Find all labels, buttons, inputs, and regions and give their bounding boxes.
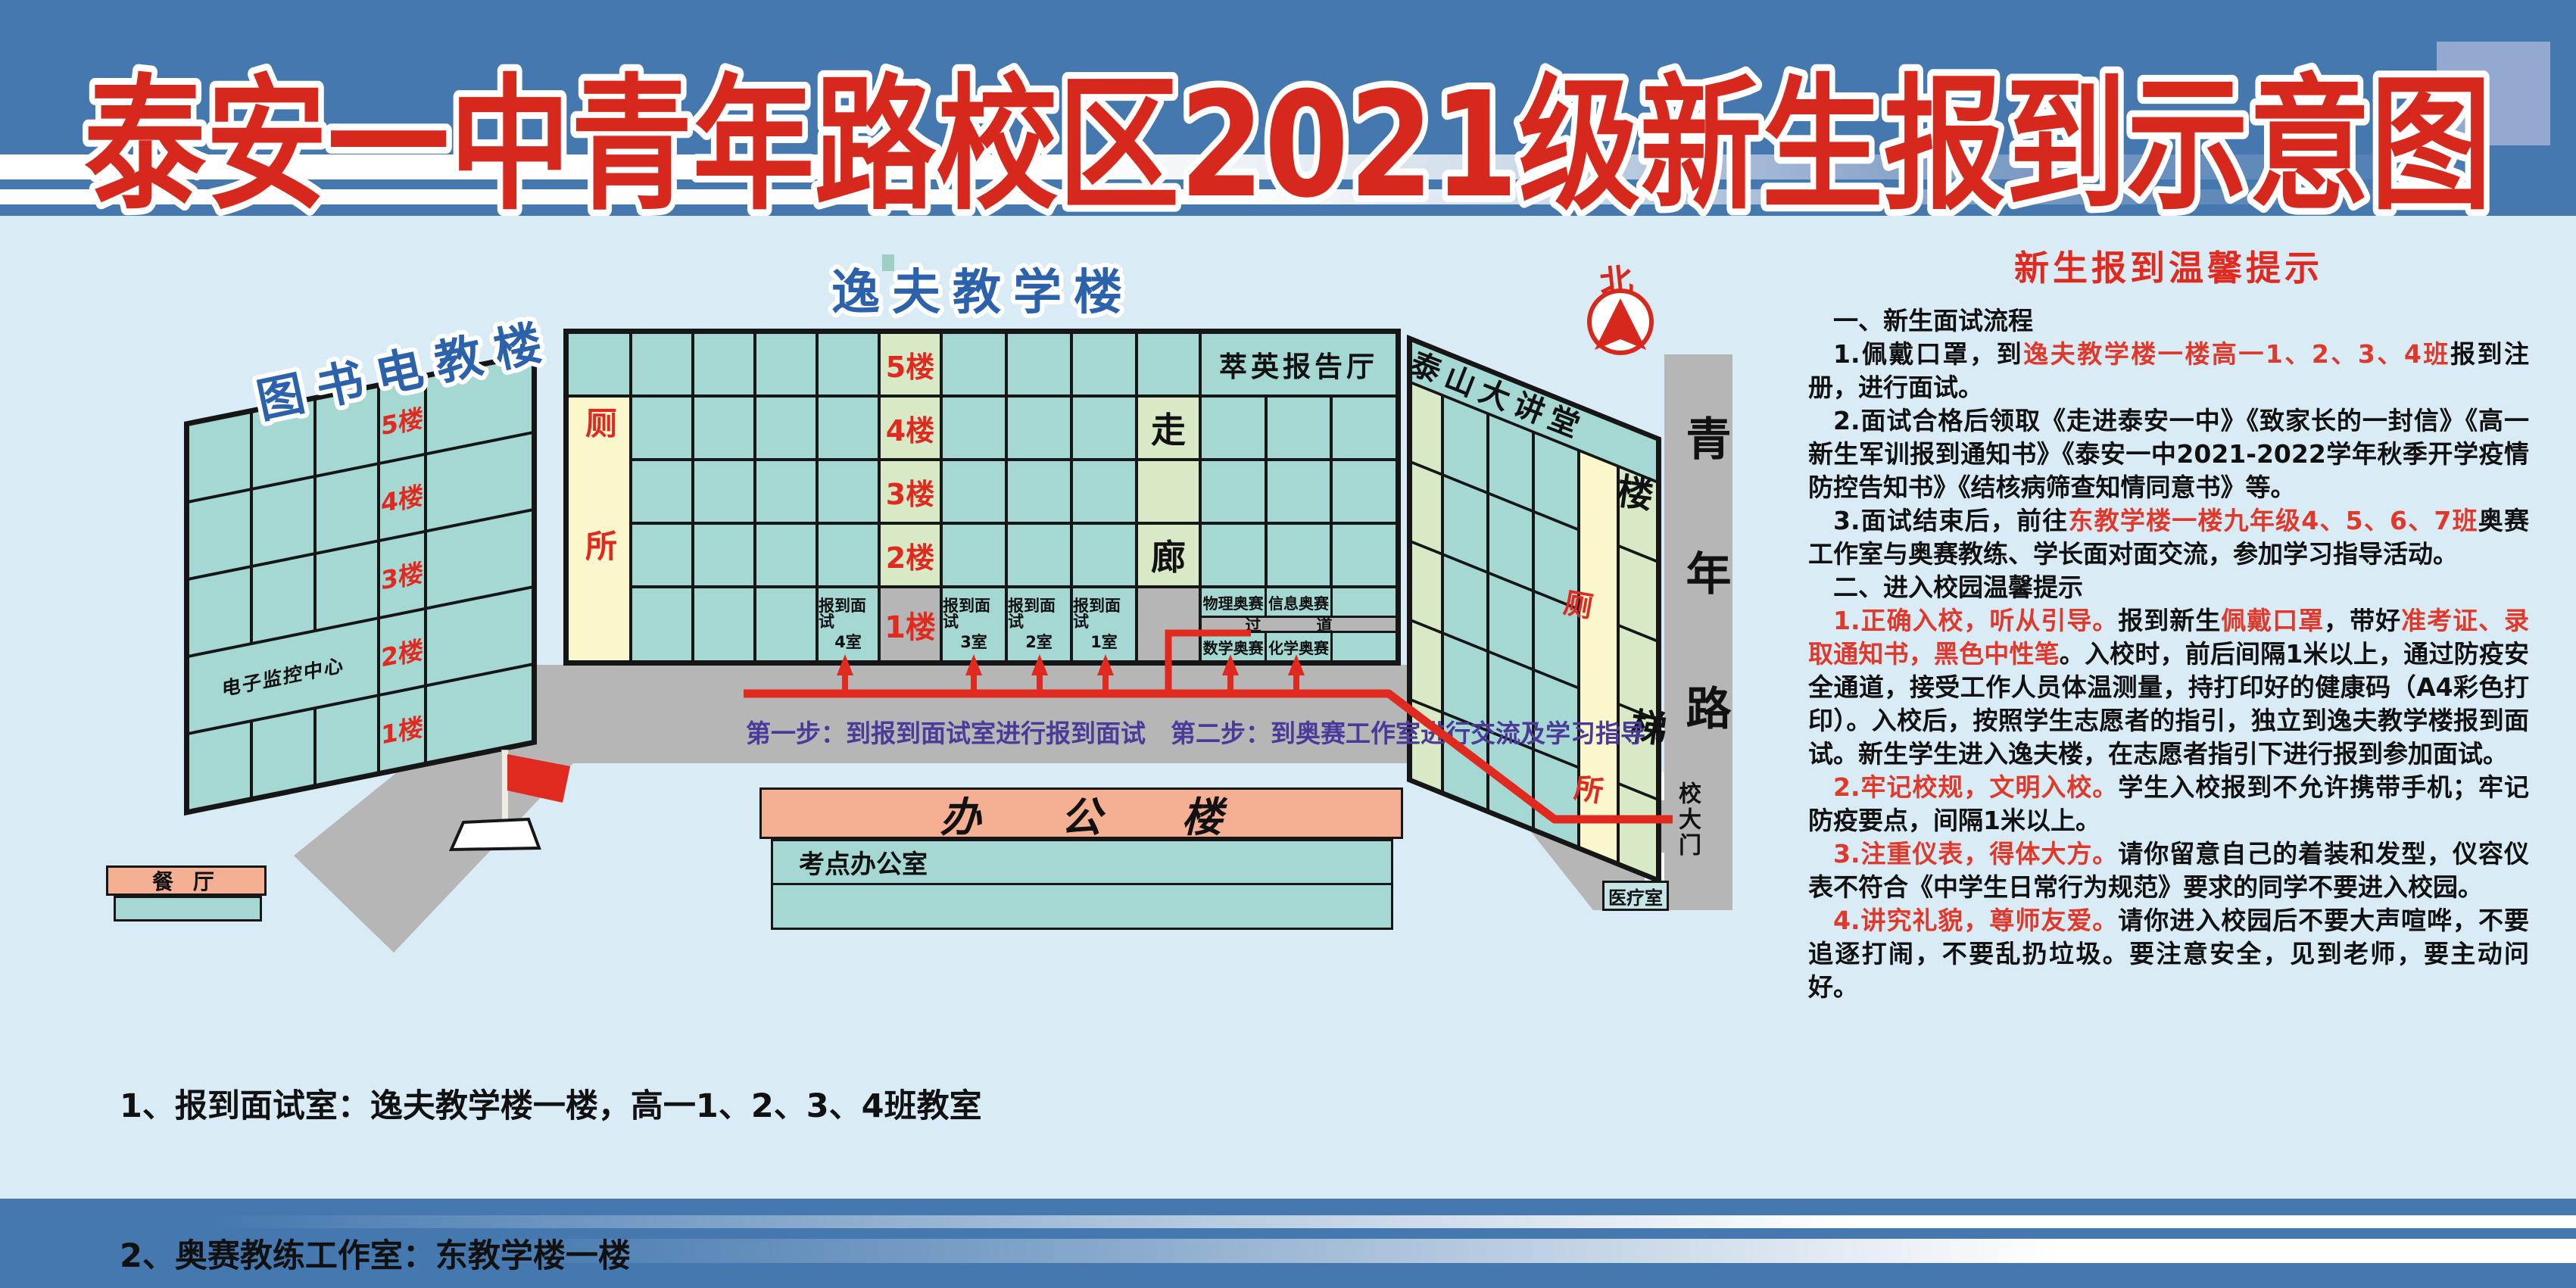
grid-cell: [1138, 334, 1199, 395]
yifu-floor-5: 5楼: [881, 334, 940, 395]
grid-cell: [317, 697, 377, 784]
yifu-building-label: 逸夫教学楼: [831, 265, 1134, 321]
notice-text: 2.面试合格后领取《走进泰安一中》《致家长的一封信》《高一新生军训报到通知书》《…: [1808, 406, 2529, 502]
grid-cell: [1412, 464, 1441, 552]
grid-cell: [253, 479, 313, 565]
grid-cell: [632, 525, 691, 585]
notice-text: 3.面试结束后，前往: [1833, 506, 2068, 535]
notice-text: ，带好: [2324, 606, 2401, 635]
grid-cell: [253, 556, 313, 642]
interview-room-1: 报到面试 1室: [1073, 588, 1135, 660]
corridor-opening: [1138, 588, 1199, 660]
notice-section1-head: 一、新生面试流程: [1808, 304, 2529, 338]
informatics-olympiad-room: 信息奥赛: [1267, 588, 1330, 616]
grid-cell: [189, 722, 250, 809]
room-label: 4室: [834, 635, 862, 650]
legend-line: 1、报到面试室：逸夫教学楼一楼，高一1、2、3、4班教室: [120, 1081, 1710, 1131]
grid-cell: [317, 388, 377, 475]
corridor-cell: [1138, 461, 1199, 522]
grid-cell: [189, 491, 250, 577]
notice-text-red: 4.讲究礼貌，尊师友爱。: [1833, 906, 2118, 935]
library-floor-5: 5楼: [380, 379, 424, 462]
exam-office-room: 考点办公室: [773, 841, 1391, 885]
notice-text-red: 2.牢记校规，文明入校。: [1833, 772, 2118, 802]
grid-cell: [1489, 575, 1532, 668]
grid-cell: [1444, 398, 1486, 491]
grid-cell: [1073, 334, 1135, 395]
yifu-teaching-building: 5楼 萃英报告厅 厕所 4楼 走 3楼: [563, 329, 1401, 666]
room-label: 报到面试: [819, 598, 878, 630]
grid-cell: [632, 398, 691, 458]
grid-cell: [1333, 633, 1396, 660]
yifu-floor-1-opening: 1楼: [881, 588, 940, 660]
notice-text-red: 3.注重仪表，得体大方。: [1833, 839, 2118, 869]
grid-cell: [632, 588, 691, 660]
notice-text: 1.佩戴口罩，到: [1833, 339, 2023, 369]
stairs-cell: [1620, 786, 1656, 877]
stairs-cell: [1620, 547, 1656, 638]
notice-text-red: 逸夫教学楼一楼高一1、2、3、4班: [2023, 339, 2450, 369]
corridor-char-bottom: 廊: [1138, 525, 1199, 585]
notice-paragraph: 1.佩戴口罩，到逸夫教学楼一楼高一1、2、3、4班报到注册，进行面试。: [1808, 338, 2529, 404]
grid-cell: [1489, 416, 1532, 509]
grid-cell: [756, 525, 816, 585]
registration-map-poster: 泰安一中青年路校区2021级新生报到示意图 5楼 4楼 3楼 电子监控中心 2楼: [0, 0, 2576, 1288]
grid-cell: [189, 568, 250, 654]
qingnian-road-label: 青年路: [1672, 415, 1725, 839]
flag-base: [451, 819, 539, 850]
chemistry-olympiad-room: 化学奥赛: [1267, 633, 1330, 660]
math-olympiad-room: 数学奥赛: [1202, 633, 1265, 660]
room-label: 2室: [1025, 635, 1053, 650]
cuiying-grid: [1202, 398, 1396, 585]
medical-room: 医疗室: [1602, 881, 1669, 911]
grid-cell: [569, 334, 629, 395]
notice-text-red: 佩戴口罩: [2221, 606, 2324, 635]
grid-cell: [189, 413, 250, 500]
office-rooms-box: 考点办公室: [771, 839, 1393, 930]
yifu-floor-4: 4楼: [881, 398, 940, 458]
interview-room-2: 报到面试 2室: [1008, 588, 1070, 660]
grid-cell: [1008, 334, 1070, 395]
grid-cell: [1444, 477, 1486, 570]
passage-bar: 过 道: [1202, 618, 1396, 631]
grid-cell: [943, 334, 1005, 395]
room-label: 1室: [1090, 635, 1118, 650]
room-label: 报到面试: [1008, 598, 1070, 630]
library-building: 5楼 4楼 3楼 电子监控中心 2楼 1楼: [184, 351, 537, 816]
grid-cell: [1333, 398, 1396, 458]
grid-cell: [1412, 385, 1441, 472]
room-label: 报到面试: [1073, 598, 1135, 630]
grid-cell: [819, 334, 878, 395]
legend-block: 1、报到面试室：逸夫教学楼一楼，高一1、2、3、4班教室 2、奥赛教练工作室：东…: [120, 981, 1710, 1288]
cuiying-hall-label: 萃英报告厅: [1202, 334, 1396, 395]
canteen: 餐 厅: [106, 865, 267, 896]
notice-paragraph: 1.正确入校，听从引导。报到新生佩戴口罩，带好准考证、录取通知书，黑色中性笔。入…: [1808, 604, 2529, 771]
grid-cell: [819, 525, 878, 585]
grid-cell: [1202, 525, 1265, 585]
grid-cell: [632, 334, 691, 395]
small-teal-square: [882, 254, 894, 271]
notice-text: 报到新生: [2118, 606, 2221, 635]
grid-cell: [756, 398, 816, 458]
grid-cell: [694, 334, 753, 395]
grid-cell: [819, 398, 878, 458]
grid-cell: [1268, 461, 1330, 522]
notice-paragraph: 3.面试结束后，前往东教学楼一楼九年级4、5、6、7班奥赛工作室与奥赛教练、学长…: [1808, 504, 2529, 571]
flag-pole: [501, 750, 509, 834]
grid-cell: [756, 334, 816, 395]
route-arrow-shafts: [845, 674, 1296, 694]
grid-cell: [1008, 461, 1070, 522]
notice-title: 新生报到温馨提示: [1808, 241, 2529, 291]
yifu-floor-2: 2楼: [881, 525, 940, 585]
grid-cell: [1202, 398, 1265, 458]
notice-paragraph: 4.讲究礼貌，尊师友爱。请你进入校园后不要大声喧哗，不要追逐打闹，不要乱扔垃圾。…: [1808, 904, 2529, 1004]
legend-line: 2、奥赛教练工作室：东教学楼一楼: [120, 1231, 1710, 1281]
canteen-annex: [114, 896, 262, 922]
notice-text-red: 东教学楼一楼九年级4、5、6、7班: [2068, 506, 2478, 535]
grid-cell: [694, 588, 753, 660]
library-floor-4: 4楼: [380, 456, 424, 539]
notice-section2-head: 二、进入校园温馨提示: [1808, 571, 2529, 604]
notice-paragraph: 3.注重仪表，得体大方。请你留意自己的着装和发型，仪容仪表不符合《中学生日常行为…: [1808, 837, 2529, 904]
library-floor-2: 2楼: [380, 610, 424, 694]
notice-panel: 新生报到温馨提示 一、新生面试流程 1.佩戴口罩，到逸夫教学楼一楼高一1、2、3…: [1808, 241, 2529, 1004]
notice-paragraph: 2.牢记校规，文明入校。学生入校报到不允许携带手机；牢记防疫要点，间隔1米以上。: [1808, 771, 2529, 837]
stairs-char-top: 楼: [1614, 461, 1657, 519]
grid-cell: [943, 461, 1005, 522]
grid-cell: [1535, 751, 1577, 844]
interview-room-4: 报到面试 4室: [819, 588, 878, 660]
grid-cell: [694, 461, 753, 522]
grid-cell: [756, 461, 816, 522]
compass-icon: [1587, 288, 1654, 355]
olympiad-rooms-block: 物理奥赛 信息奥赛 过 道 数学奥赛 化学奥赛: [1202, 588, 1396, 660]
grid-cell: [317, 543, 377, 629]
yifu-toilet: 厕所: [569, 398, 629, 660]
grid-cell: [632, 461, 691, 522]
page-title: 泰安一中青年路校区2021级新生报到示意图: [84, 61, 2492, 216]
grid-cell: [819, 461, 878, 522]
grid-cell: [1008, 525, 1070, 585]
grid-cell: [1073, 398, 1135, 458]
grid-cell: [1333, 461, 1396, 522]
school-gate-label: 校大门: [1676, 781, 1704, 872]
grid-cell: [1073, 461, 1135, 522]
office-building: 办 公 楼: [759, 787, 1403, 839]
grid-cell: [1268, 398, 1330, 458]
grid-cell: [1412, 622, 1441, 710]
red-flag-icon: [507, 754, 570, 803]
grid-cell: [943, 525, 1005, 585]
yifu-floor-3: 3楼: [881, 461, 940, 522]
grid-cell: [1073, 525, 1135, 585]
grid-cell: [943, 398, 1005, 458]
notice-text-red: 1.正确入校，听从引导。: [1833, 606, 2118, 635]
interview-room-3: 报到面试 3室: [943, 588, 1005, 660]
room-label: 报到面试: [943, 598, 1005, 630]
grid-cell: [1333, 525, 1396, 585]
grid-cell: [1008, 398, 1070, 458]
grid-cell: [1444, 556, 1486, 649]
library-floor-3: 3楼: [380, 533, 424, 616]
grid-cell: [1535, 434, 1577, 527]
grid-cell: [1333, 588, 1396, 616]
grid-cell: [317, 466, 377, 552]
grid-cell: [756, 588, 816, 660]
grid-cell: [253, 401, 313, 488]
room-label: 3室: [960, 635, 987, 650]
grid-cell: [694, 525, 753, 585]
route-steps-text: 第一步：到报到面试室进行报到面试 第二步：到奥赛工作室进行交流及学习指导: [746, 713, 1503, 750]
corridor-char-top: 走: [1138, 398, 1199, 458]
notice-paragraph: 2.面试合格后领取《走进泰安一中》《致家长的一封信》《高一新生军训报到通知书》《…: [1808, 404, 2529, 504]
grid-cell: [253, 710, 313, 797]
grid-cell: [1412, 543, 1441, 631]
grid-cell: [1268, 525, 1330, 585]
library-floor-1: 1楼: [380, 688, 424, 771]
grid-cell: [1202, 461, 1265, 522]
grid-cell: [694, 398, 753, 458]
poster-title-svg: 泰安一中青年路校区2021级新生报到示意图: [0, 0, 2576, 216]
grid-cell: [1489, 495, 1532, 588]
physics-olympiad-room: 物理奥赛: [1202, 588, 1265, 616]
